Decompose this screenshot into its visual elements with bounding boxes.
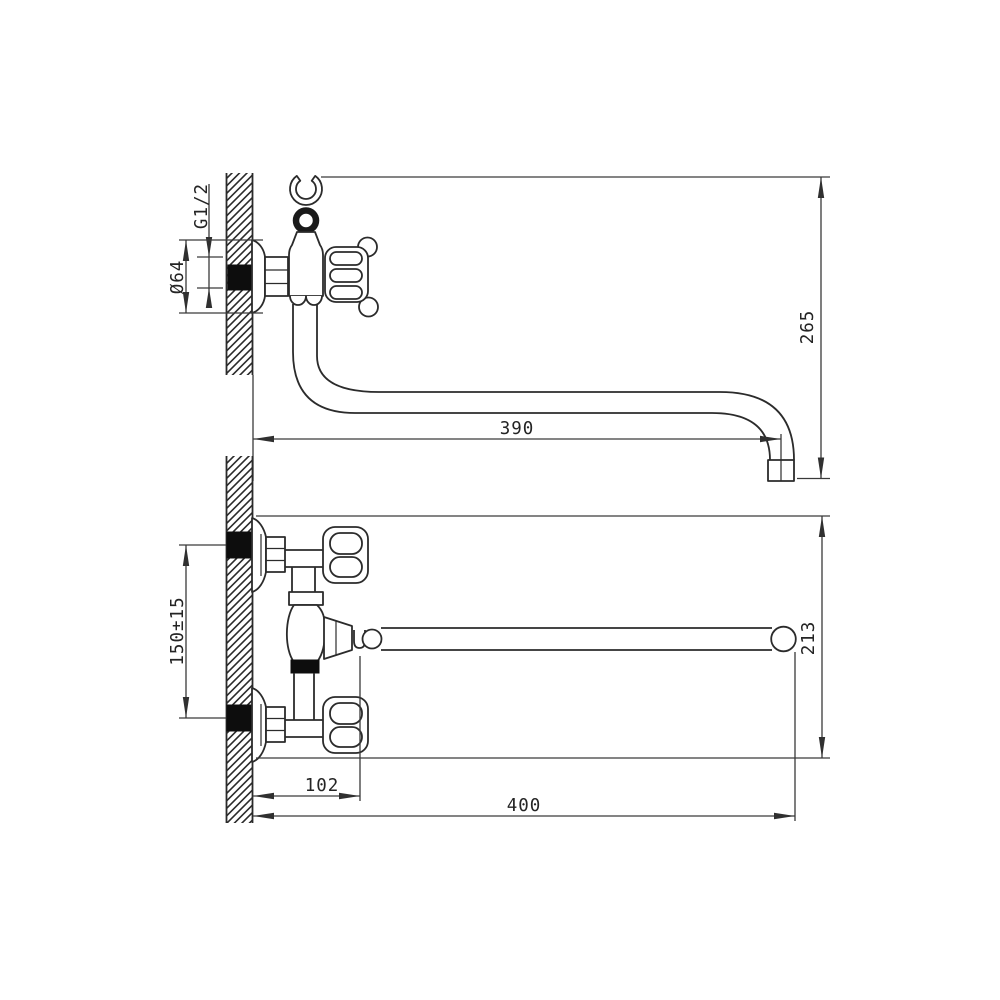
arrow-left-icon	[253, 793, 274, 799]
arrow-left-icon	[253, 436, 274, 442]
spout-inner-edge	[317, 304, 794, 460]
handle-lobe	[330, 252, 362, 265]
inlet-pipe-top	[285, 550, 325, 567]
diverter-seal-band	[291, 660, 319, 673]
arrow-down-icon	[183, 697, 189, 718]
technical-drawing: G1/2 Ø64 265 390	[0, 0, 1000, 1000]
handle-lobe	[330, 269, 362, 282]
arrow-down-icon	[818, 458, 824, 479]
dim-label-spacing: 150±15	[168, 596, 188, 665]
dim-height-265: 265	[321, 177, 830, 479]
arrow-left-icon	[253, 813, 274, 819]
spout-end-cap	[771, 627, 796, 652]
faucet-body-side	[289, 232, 323, 296]
arrow-down-icon	[819, 737, 825, 758]
diverter-body	[287, 605, 325, 662]
body-collar	[289, 592, 323, 605]
front-view: 150±15 213 102 400	[168, 456, 830, 823]
dim-label-height: 213	[799, 621, 819, 656]
spout-tube	[381, 628, 772, 650]
arrow-up-icon	[183, 545, 189, 566]
hex-nut-side	[265, 257, 288, 296]
shower-hose-hook	[290, 176, 322, 205]
handle-lobe	[330, 533, 362, 554]
body-pipe-lower	[294, 673, 314, 720]
wall-hatch-bottom	[227, 456, 253, 823]
arrow-up-icon	[819, 516, 825, 537]
wall-anchor-block	[228, 265, 253, 290]
inlet-pipe-bottom	[285, 720, 325, 737]
extension-lines	[321, 177, 830, 479]
dim-label-reach: 400	[507, 796, 542, 816]
dim-label-thread: G1/2	[192, 183, 212, 229]
handle-lobe	[330, 286, 362, 299]
dim-inlet-spacing: 150±15	[168, 545, 226, 718]
dim-ticks	[197, 257, 223, 288]
escutcheon-top-inlet	[252, 518, 266, 592]
arrow-up-icon	[206, 288, 212, 308]
handle-lobe	[330, 703, 362, 724]
dim-label-offset: 102	[305, 776, 340, 796]
escutcheon-side	[252, 240, 265, 313]
arrow-right-icon	[339, 793, 360, 799]
dim-label-diameter: Ø64	[168, 260, 188, 295]
spout-base-bell	[324, 617, 352, 659]
body-pipe-upper	[292, 567, 315, 592]
dim-label-height: 265	[798, 310, 818, 345]
spout-ball-joint	[363, 630, 382, 649]
escutcheon-bottom-inlet	[252, 688, 266, 762]
handle-lobe	[330, 557, 362, 577]
hook-mounting-ring	[296, 211, 316, 231]
arrow-right-icon	[774, 813, 795, 819]
hex-nut-bottom-inlet	[266, 707, 285, 742]
arrow-right-icon	[760, 436, 781, 442]
hex-nut-top-inlet	[266, 537, 285, 572]
wall-anchor-block-bottom	[227, 705, 252, 731]
dim-label-reach: 390	[500, 419, 535, 439]
dim-spout-reach: 390	[253, 375, 781, 481]
arrow-up-icon	[183, 240, 189, 261]
dim-thread-size: G1/2	[192, 183, 223, 308]
arrow-up-icon	[818, 177, 824, 198]
side-view: G1/2 Ø64 265 390	[168, 173, 830, 481]
body-collar-scallops	[290, 296, 322, 305]
wall-anchor-block-top	[227, 532, 252, 558]
handle-lobe	[330, 727, 362, 747]
